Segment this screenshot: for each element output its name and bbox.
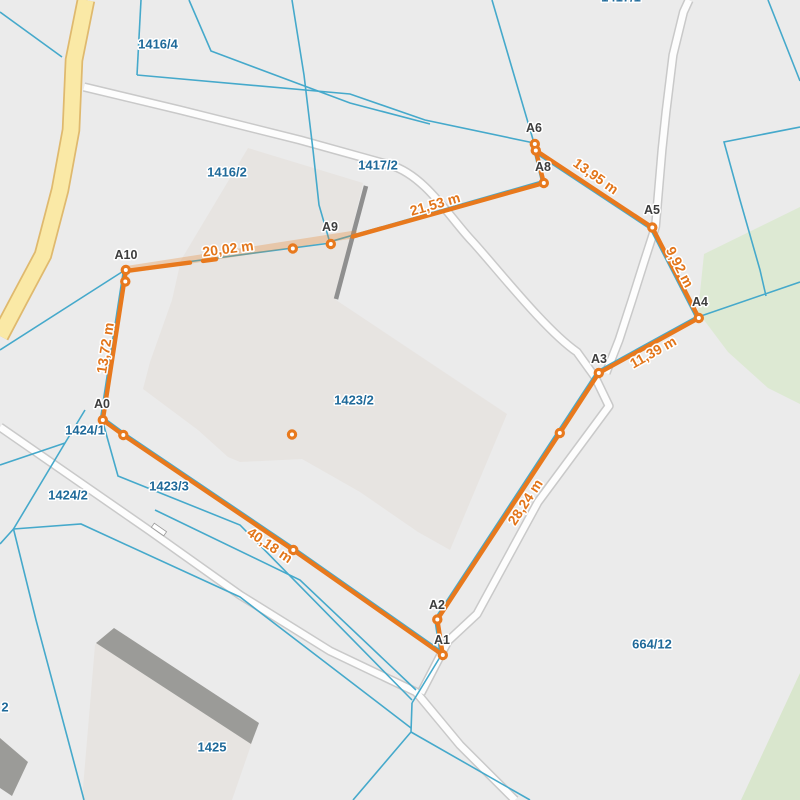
svg-text:1423/3: 1423/3	[149, 479, 189, 494]
svg-text:1425: 1425	[198, 740, 227, 755]
svg-text:A1: A1	[434, 633, 450, 647]
svg-text:1416/4: 1416/4	[138, 37, 179, 52]
svg-text:1424/1: 1424/1	[65, 423, 105, 438]
svg-text:A9: A9	[322, 220, 338, 234]
svg-text:1423/2: 1423/2	[334, 393, 374, 408]
svg-text:A6: A6	[526, 121, 542, 135]
svg-text:664/12: 664/12	[632, 637, 672, 652]
svg-text:A8: A8	[535, 160, 551, 174]
svg-text:A3: A3	[591, 352, 607, 366]
svg-text:A4: A4	[692, 295, 708, 309]
svg-text:1417/1: 1417/1	[601, 0, 641, 5]
svg-text:1416/2: 1416/2	[207, 165, 247, 180]
svg-text:1424/2: 1424/2	[48, 488, 88, 503]
svg-text:1417/2: 1417/2	[358, 158, 398, 173]
svg-text:A0: A0	[94, 397, 110, 411]
svg-text:2: 2	[1, 700, 8, 715]
svg-text:A2: A2	[429, 598, 445, 612]
svg-text:A10: A10	[115, 248, 138, 262]
svg-text:A5: A5	[644, 203, 660, 217]
